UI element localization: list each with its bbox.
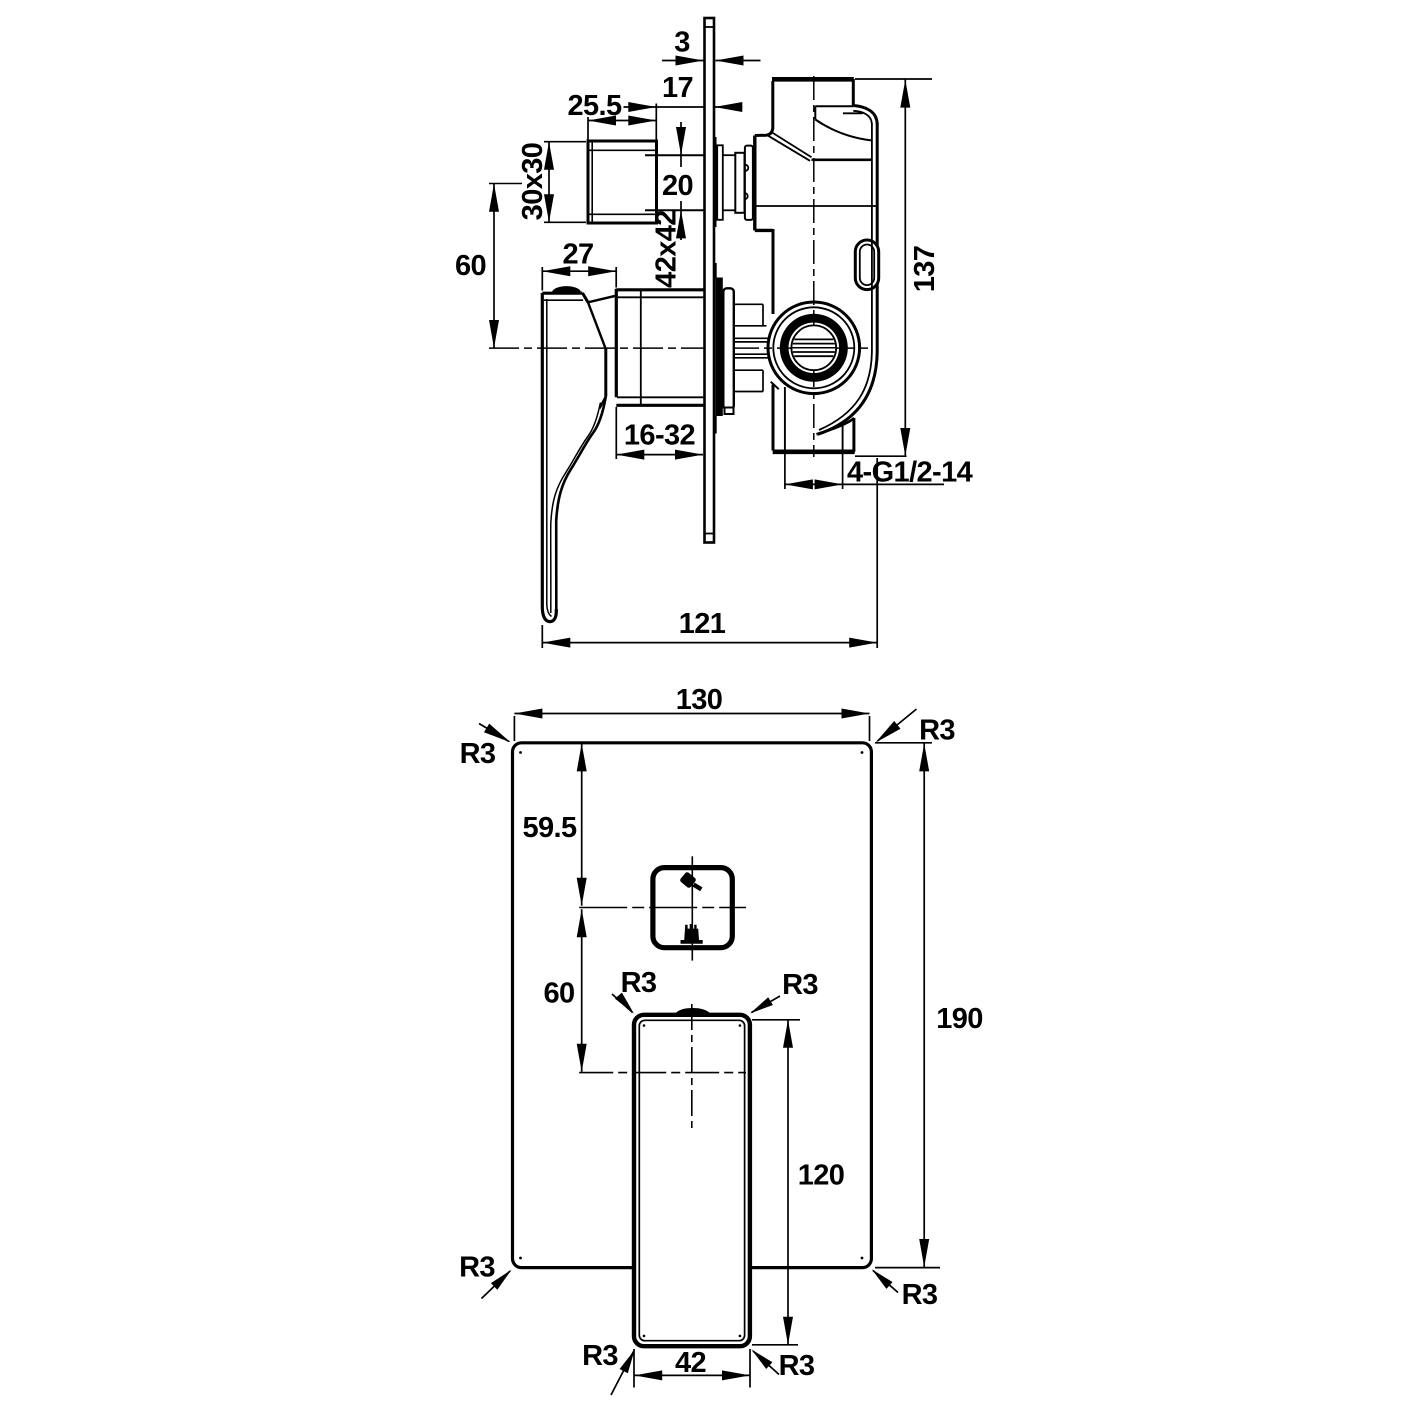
svg-text:17: 17: [662, 72, 693, 104]
svg-text:R3: R3: [779, 1350, 815, 1382]
svg-text:3: 3: [674, 27, 690, 59]
svg-text:R3: R3: [460, 738, 496, 770]
svg-text:190: 190: [936, 1003, 983, 1035]
svg-text:121: 121: [679, 608, 726, 640]
svg-text:R3: R3: [621, 967, 657, 999]
svg-text:130: 130: [676, 684, 723, 716]
svg-text:42x42: 42x42: [651, 210, 683, 288]
svg-text:R3: R3: [902, 1279, 938, 1311]
svg-text:R3: R3: [459, 1252, 495, 1284]
svg-text:R3: R3: [919, 715, 955, 747]
svg-text:27: 27: [562, 239, 593, 271]
svg-text:60: 60: [455, 250, 486, 282]
svg-text:30x30: 30x30: [517, 143, 549, 221]
svg-text:42: 42: [675, 1347, 706, 1379]
svg-text:R3: R3: [582, 1340, 618, 1372]
svg-text:R3: R3: [782, 969, 818, 1001]
svg-text:59.5: 59.5: [522, 812, 577, 844]
svg-text:16-32: 16-32: [624, 420, 695, 452]
svg-text:120: 120: [798, 1160, 845, 1192]
svg-text:20: 20: [662, 170, 693, 202]
svg-text:60: 60: [543, 978, 574, 1010]
svg-text:137: 137: [909, 246, 941, 293]
